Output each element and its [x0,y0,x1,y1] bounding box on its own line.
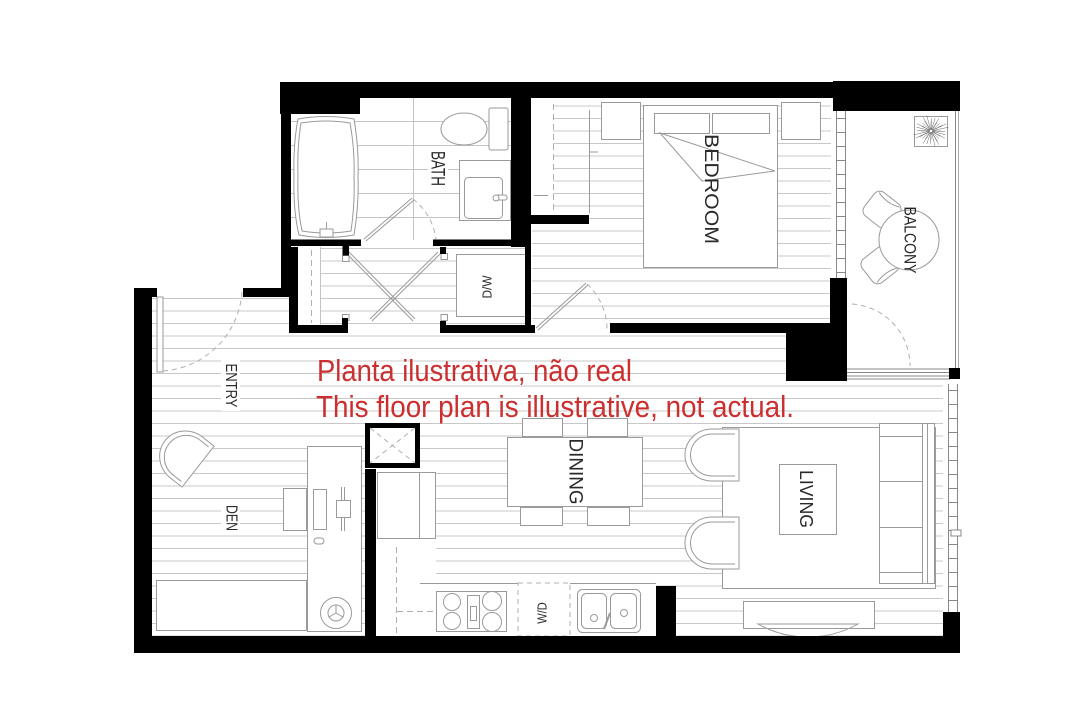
svg-text:This floor plan is illustrativ: This floor plan is illustrative, not act… [316,389,794,424]
svg-text:Planta ilustrativa, não real: Planta ilustrativa, não real [317,353,632,388]
svg-text:D/W: D/W [481,275,495,298]
svg-text:BATH: BATH [427,151,448,186]
svg-text:LIVING: LIVING [796,470,816,528]
svg-text:DEN: DEN [223,505,240,531]
svg-text:W/D: W/D [536,602,550,624]
svg-text:BEDROOM: BEDROOM [700,134,722,244]
svg-text:BALCONY: BALCONY [901,207,919,274]
svg-text:ENTRY: ENTRY [222,364,239,408]
svg-text:DINING: DINING [565,439,586,505]
